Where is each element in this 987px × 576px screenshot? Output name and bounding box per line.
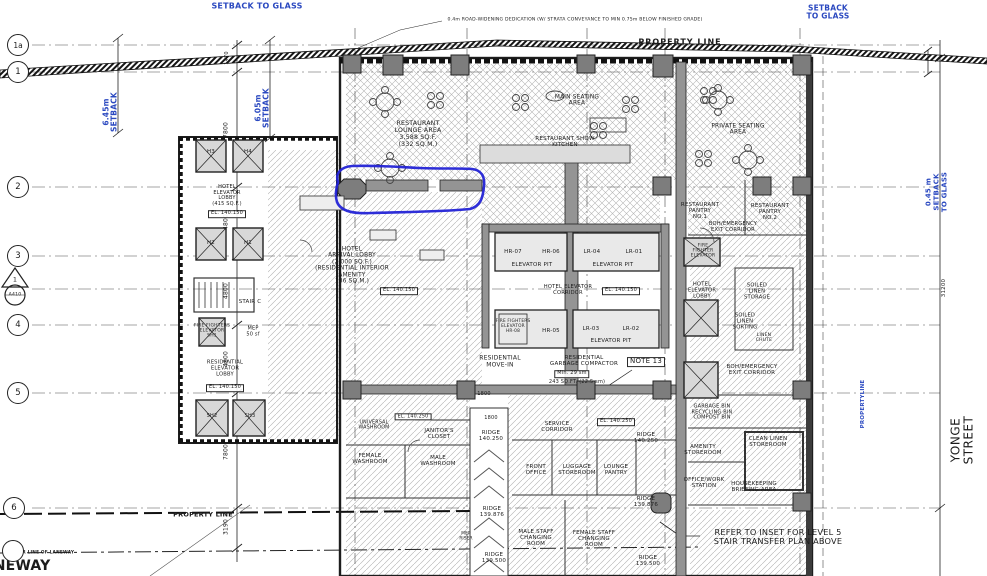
elevator-cab-sh3 <box>233 400 265 436</box>
elevator-cab-h3 <box>196 140 226 172</box>
grid-bubble-3: 3 <box>7 245 29 267</box>
elevator-cab-h4 <box>233 140 263 172</box>
grid-bubble-5: 5 <box>7 382 29 404</box>
elevator-cab-sh1 <box>199 318 225 346</box>
service-ramp <box>470 408 508 576</box>
floor-plan-canvas: SETBACK TO GLASSSETBACK TO GLASS0.4m ROA… <box>0 0 987 576</box>
elevator-cab-right-3 <box>684 362 718 398</box>
grid-bubble-4: 4 <box>7 314 29 336</box>
grid-bubble-1a: 1a <box>7 34 29 56</box>
grid-bubble-laneway <box>2 540 24 562</box>
elevator-cab-sh2 <box>196 400 228 436</box>
grid-bubble-6: 6 <box>3 497 25 519</box>
elevator-cab-right-2 <box>684 300 718 336</box>
stair-c-treads <box>194 278 254 312</box>
elevator-cab-ff-right <box>684 238 720 266</box>
elevator-cab-h1 <box>233 228 263 260</box>
section-marker <box>2 268 28 305</box>
elevator-cab-h2 <box>196 228 226 260</box>
grid-bubble-2: 2 <box>7 176 29 198</box>
grid-bubble-1: 1 <box>7 61 29 83</box>
floor-plan-drawing <box>0 0 987 576</box>
